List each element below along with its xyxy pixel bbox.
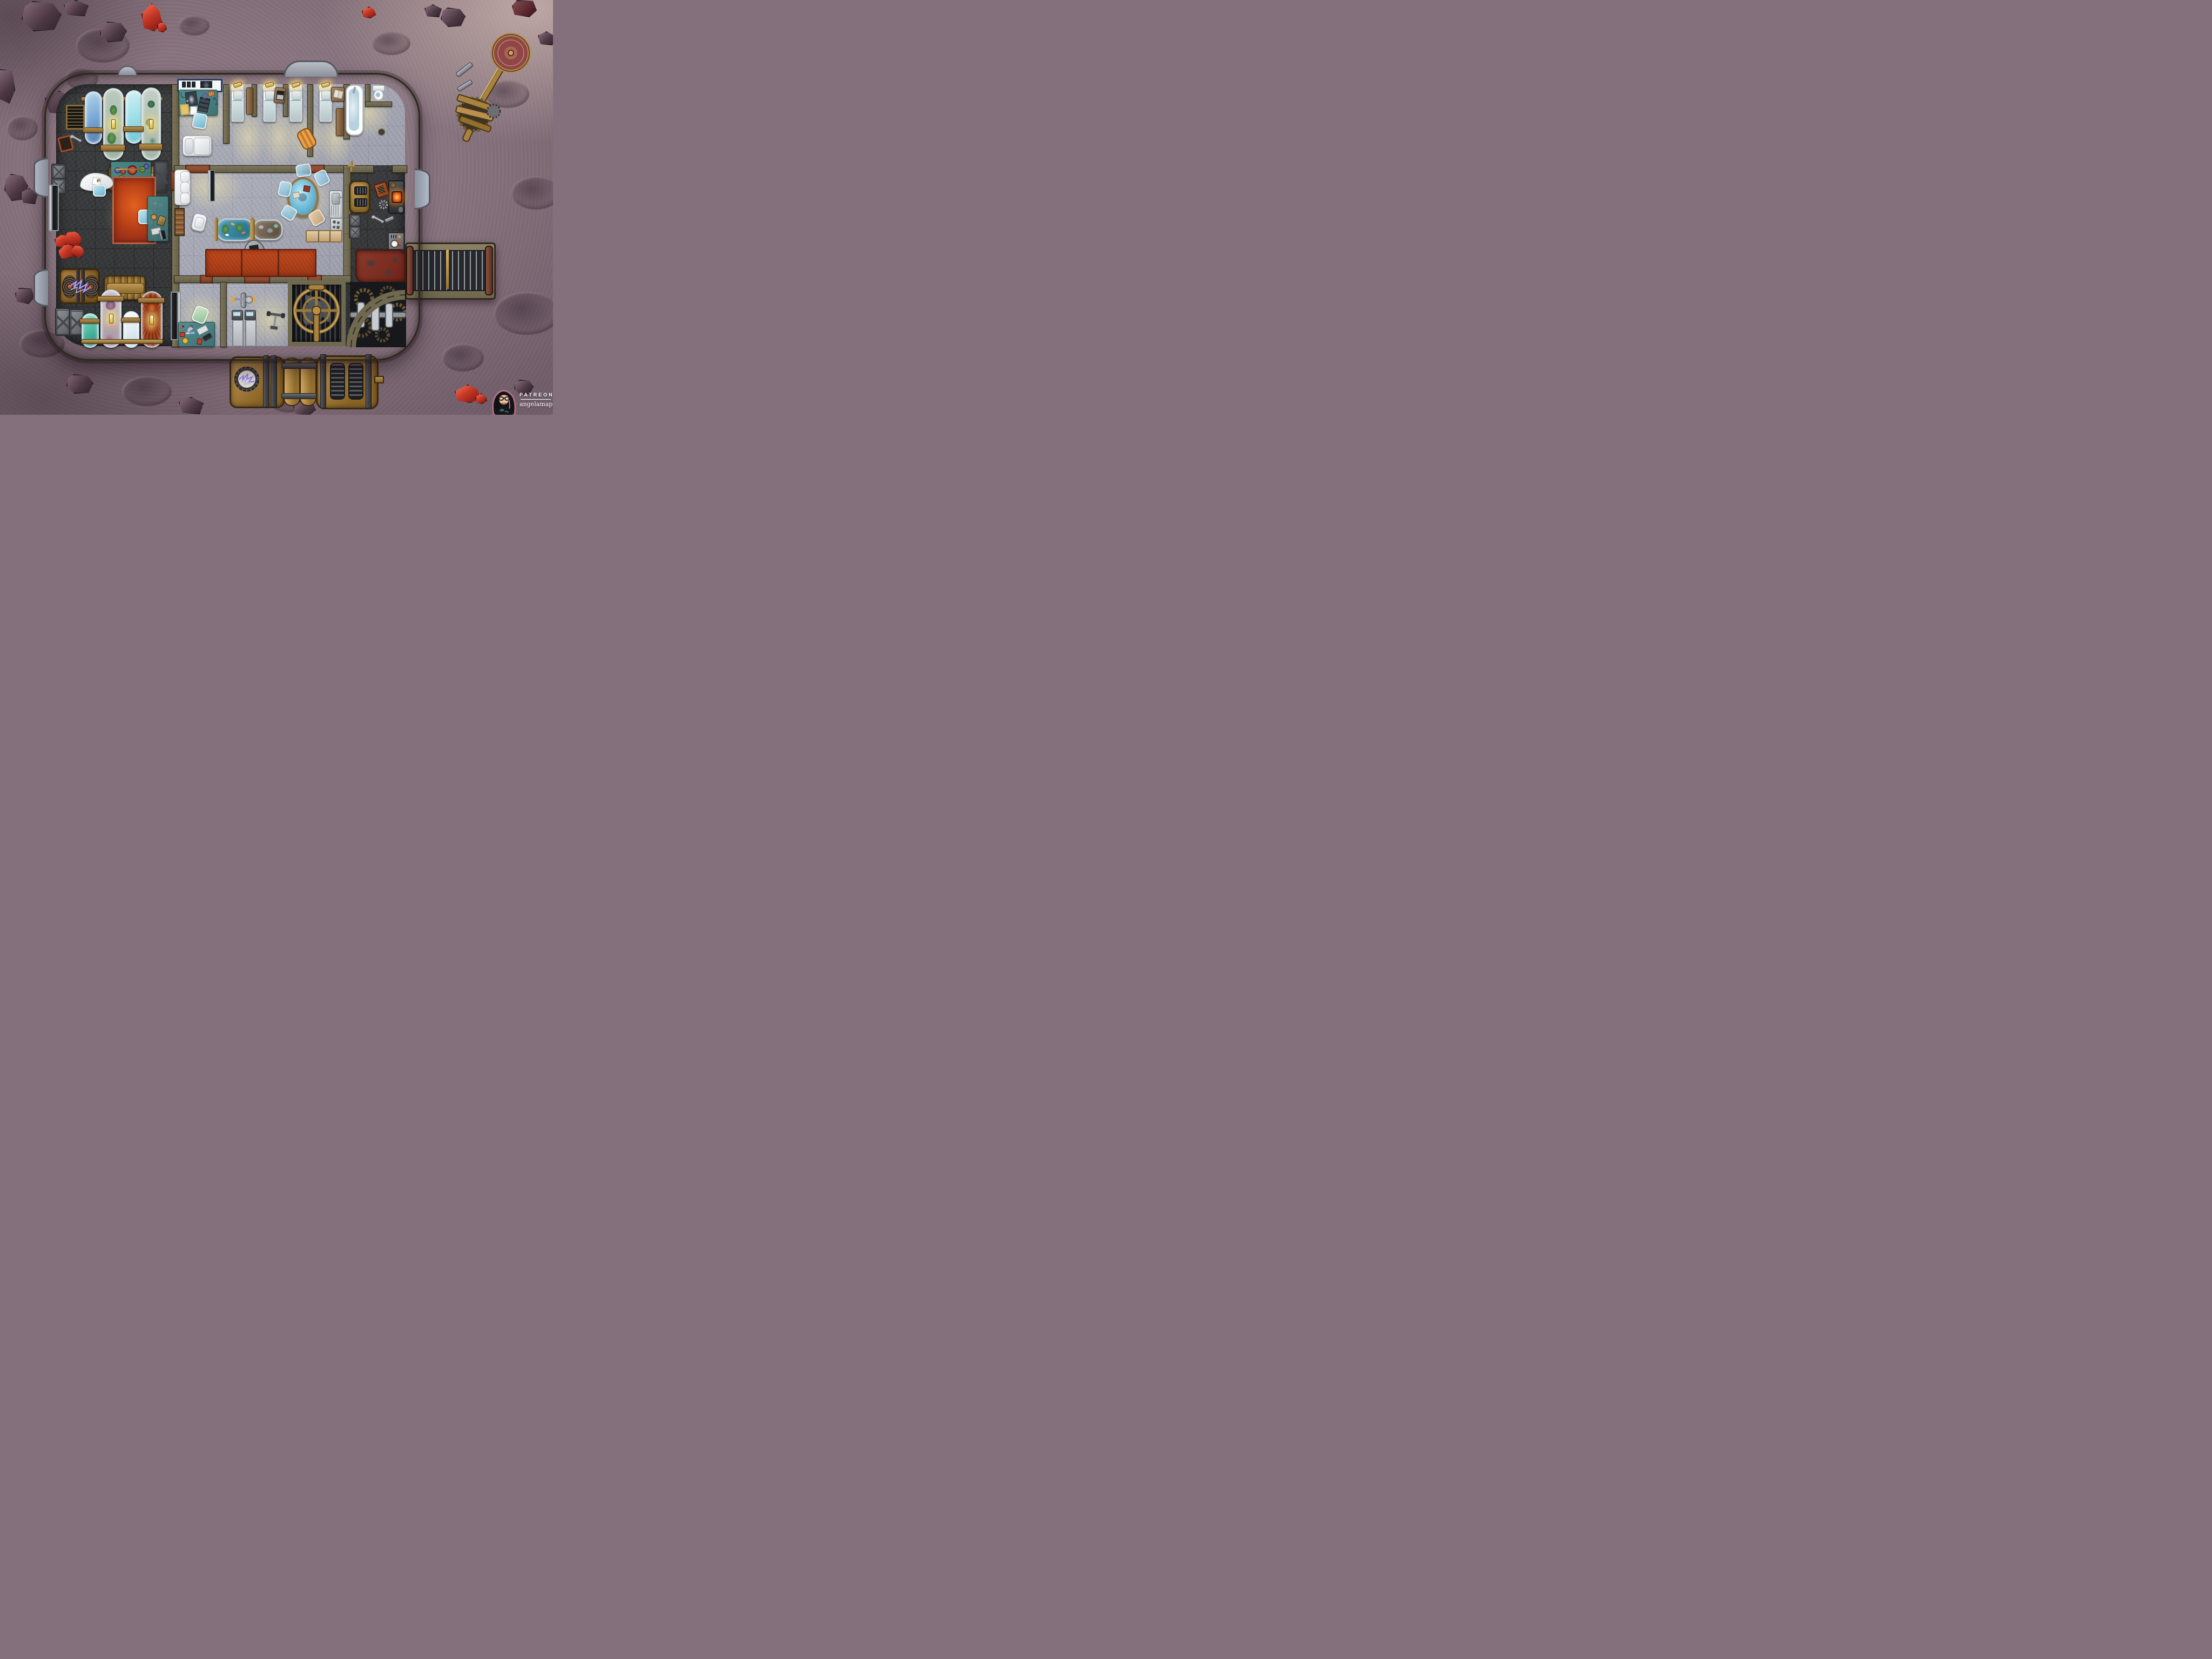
mineral-desk bbox=[147, 196, 168, 241]
observation-dome-left bbox=[33, 269, 48, 307]
crystal-specimen-pile bbox=[53, 231, 83, 259]
brass-pipe bbox=[81, 339, 163, 344]
conveyor-roller bbox=[485, 246, 493, 295]
glass-chair bbox=[295, 163, 312, 178]
electric-porthole bbox=[234, 366, 260, 392]
tank-base bbox=[123, 126, 144, 132]
wall bbox=[220, 282, 227, 347]
creator-avatar bbox=[488, 389, 520, 415]
crater bbox=[372, 31, 410, 55]
bookshelf bbox=[174, 208, 185, 236]
specimen-tank-water bbox=[85, 91, 102, 144]
tank-collar bbox=[138, 298, 165, 303]
tank-base bbox=[83, 127, 103, 133]
film-strip bbox=[198, 97, 211, 112]
physician-desk bbox=[179, 90, 218, 116]
engine-room-gearworks bbox=[346, 279, 406, 347]
dorm-bed bbox=[289, 85, 302, 122]
red-crystal-formation bbox=[362, 6, 376, 18]
wall bbox=[172, 84, 179, 172]
nightstand-laptop bbox=[274, 87, 286, 104]
observation-dome-top-left bbox=[118, 66, 137, 75]
barbell bbox=[265, 312, 285, 331]
lab-monitor bbox=[201, 332, 213, 342]
treadmill bbox=[232, 310, 242, 346]
boulder bbox=[64, 0, 89, 16]
tall-locker bbox=[336, 108, 344, 136]
red-rug-panels bbox=[205, 249, 316, 277]
tv-screen bbox=[208, 170, 215, 201]
brass-artifact bbox=[156, 215, 166, 227]
tank-lamp bbox=[149, 119, 153, 129]
boulder bbox=[66, 374, 93, 394]
koi-aquarium bbox=[216, 218, 254, 241]
nightstand-book bbox=[331, 87, 345, 102]
clipboard bbox=[180, 104, 190, 116]
tank-collar bbox=[79, 319, 100, 323]
tesla-coil-generator bbox=[59, 268, 100, 304]
wall-valve bbox=[348, 161, 355, 172]
patreon-badge: PATREON angelamaps bbox=[485, 388, 553, 415]
crater bbox=[6, 116, 38, 140]
tank-base bbox=[139, 144, 163, 150]
pill-packet bbox=[208, 91, 215, 97]
boulder bbox=[179, 397, 204, 414]
safety-goggles bbox=[190, 331, 195, 335]
vent-slats bbox=[330, 363, 345, 400]
dorm-bed bbox=[231, 85, 244, 122]
crater bbox=[494, 292, 553, 335]
mineral-rocks bbox=[151, 200, 164, 212]
external-generator bbox=[230, 354, 380, 407]
electric-arc bbox=[65, 275, 95, 297]
pie-chart bbox=[97, 179, 100, 183]
wall bbox=[223, 84, 230, 144]
lab-bench bbox=[178, 322, 215, 347]
tank-lamp bbox=[111, 119, 116, 129]
sink-faucet bbox=[338, 197, 342, 198]
crater bbox=[122, 376, 172, 406]
book-on-table bbox=[303, 185, 311, 192]
flask-blue bbox=[144, 164, 149, 169]
tank-base bbox=[100, 145, 125, 151]
exercise-bike bbox=[231, 292, 255, 308]
boulder bbox=[538, 31, 553, 45]
observation-dome-top bbox=[284, 60, 339, 77]
wall bbox=[365, 102, 392, 107]
bathtub bbox=[346, 85, 363, 136]
moonbase-battle-map: PATREON angelamaps bbox=[0, 0, 553, 415]
kitchen-cabinets bbox=[306, 230, 342, 242]
crater bbox=[511, 176, 553, 210]
brass-boiler bbox=[349, 180, 370, 214]
patient-exam-bed bbox=[183, 136, 212, 156]
wall bbox=[392, 165, 407, 173]
spare-gear bbox=[379, 200, 388, 210]
tank-lamp bbox=[150, 315, 154, 325]
crater bbox=[178, 15, 210, 36]
stethoscope-icon bbox=[179, 91, 190, 102]
red-boulder bbox=[512, 0, 537, 17]
lab-instruments bbox=[182, 338, 188, 344]
metal-crates bbox=[349, 214, 361, 227]
tank-lamp bbox=[109, 314, 113, 323]
sofa bbox=[174, 170, 191, 205]
metal-crates bbox=[349, 226, 361, 239]
dorm-bed bbox=[319, 85, 332, 122]
koi-fish bbox=[231, 222, 235, 226]
boulder bbox=[15, 288, 35, 304]
koi-fish bbox=[241, 231, 246, 234]
tall-locker bbox=[246, 87, 253, 114]
magnifier-icon bbox=[202, 93, 208, 99]
terrarium bbox=[253, 219, 283, 240]
medical-chair bbox=[192, 112, 208, 130]
boulder bbox=[0, 69, 15, 104]
worn-bloodstained-rug bbox=[355, 249, 406, 283]
boulder bbox=[22, 1, 62, 31]
wall bbox=[174, 275, 201, 283]
spectacles-icon bbox=[213, 97, 218, 105]
gauge-dial bbox=[390, 240, 399, 248]
scale-icon bbox=[151, 214, 157, 220]
laptop bbox=[276, 90, 285, 100]
floor-drain bbox=[378, 129, 385, 136]
outlet-pipe bbox=[374, 376, 384, 383]
toilet bbox=[373, 85, 383, 100]
badge-divider bbox=[521, 399, 551, 400]
conveyor-surface bbox=[409, 250, 490, 291]
observation-dome-left bbox=[33, 158, 48, 198]
ventilation-room bbox=[288, 280, 346, 346]
metal-crates bbox=[51, 164, 66, 179]
observation-dome-right bbox=[415, 168, 430, 210]
forge-furnace bbox=[388, 180, 404, 214]
creator-handle: angelamaps bbox=[520, 401, 552, 408]
dorm-bed bbox=[263, 85, 276, 122]
wrench-icon bbox=[372, 214, 385, 224]
vent-grate bbox=[66, 105, 85, 130]
wall bbox=[210, 165, 304, 173]
wrench-icon bbox=[70, 133, 82, 143]
open-book bbox=[333, 89, 343, 99]
control-panel bbox=[388, 232, 404, 250]
tank-collar bbox=[97, 296, 124, 301]
reception-chair bbox=[93, 185, 106, 197]
boulder bbox=[441, 8, 466, 27]
specimen-tank-cyan bbox=[125, 90, 143, 144]
treadmill bbox=[245, 310, 255, 346]
red-switch bbox=[180, 332, 185, 337]
metal-crates bbox=[55, 308, 70, 336]
koi-fish bbox=[225, 234, 229, 237]
crater bbox=[442, 343, 484, 372]
wall-monitor bbox=[49, 185, 59, 231]
vent-slats bbox=[348, 363, 363, 400]
flask-red bbox=[127, 165, 137, 175]
boulder bbox=[424, 4, 442, 17]
red-switch bbox=[197, 338, 203, 345]
desk-monitor bbox=[159, 230, 167, 240]
caged-brass-fan bbox=[292, 285, 341, 342]
kitchen-sink-unit bbox=[329, 190, 343, 219]
molecule-models bbox=[180, 325, 185, 329]
patreon-wordmark: PATREON bbox=[520, 392, 552, 397]
tank-collar bbox=[121, 318, 140, 322]
